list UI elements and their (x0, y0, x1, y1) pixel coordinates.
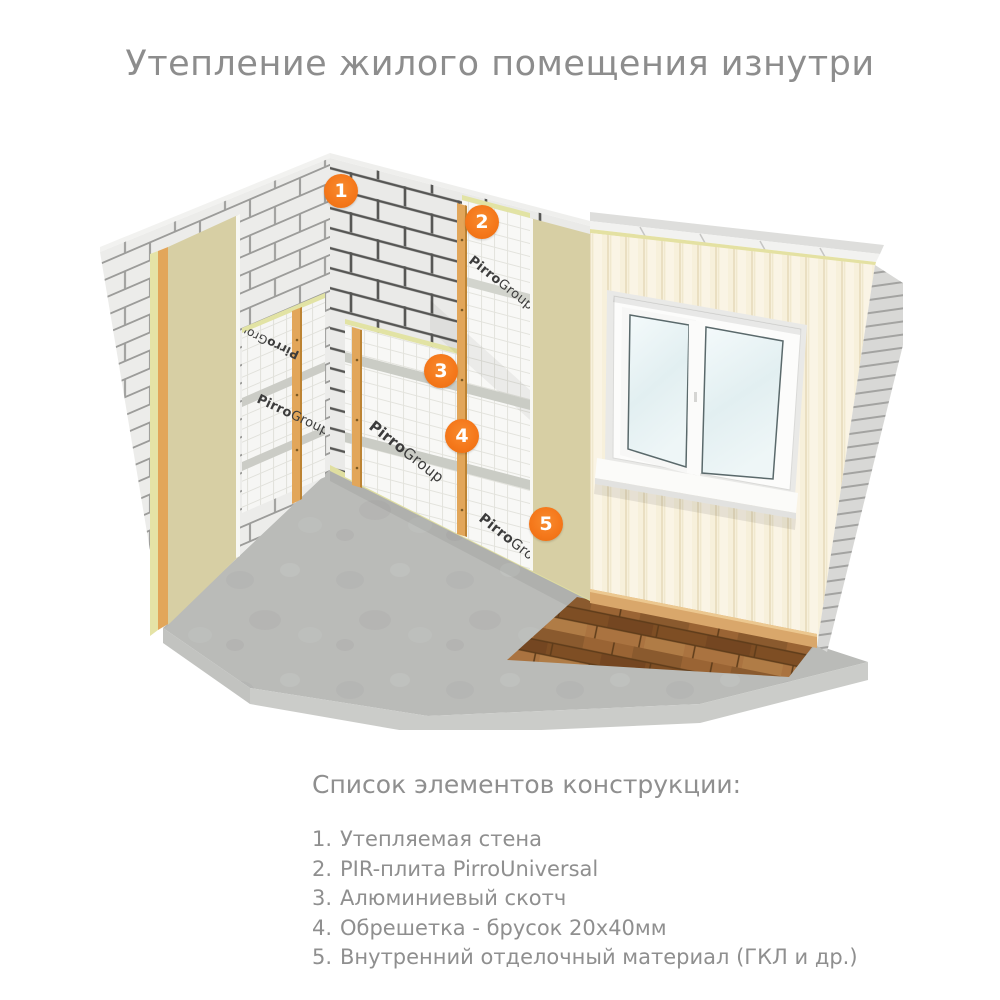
item-text: Алюминиевый скотч (340, 884, 566, 914)
legend-item: 2.PIR-плита PirroUniversal (312, 855, 872, 885)
legend: Список элементов конструкции: 1.Утепляем… (312, 770, 872, 973)
page: Утепление жилого помещения изнутри (0, 0, 1000, 1000)
marker-4: 4 (445, 419, 479, 453)
item-text: Утепляемая стена (340, 825, 542, 855)
window (594, 290, 807, 530)
item-number: 3. (312, 884, 340, 914)
item-number: 4. (312, 914, 340, 944)
window-glass-left (628, 315, 689, 467)
finish-panel-back-wall (530, 218, 590, 600)
item-number: 5. (312, 943, 340, 973)
legend-item: 1.Утепляемая стена (312, 825, 872, 855)
window-handle (694, 392, 697, 402)
legend-heading: Список элементов конструкции: (312, 770, 872, 799)
item-text: Внутренний отделочный материал (ГКЛ и др… (340, 943, 858, 973)
marker-2: 2 (465, 205, 499, 239)
marker-3: 3 (424, 354, 458, 388)
item-number: 2. (312, 855, 340, 885)
marker-5: 5 (529, 507, 563, 541)
legend-item: 5.Внутренний отделочный материал (ГКЛ и … (312, 943, 872, 973)
room-illustration: PirroGroup PirroGroup PirroGroup PirroGr… (80, 130, 920, 730)
page-title: Утепление жилого помещения изнутри (0, 44, 1000, 84)
item-number: 1. (312, 825, 340, 855)
item-text: Обрешетка - брусок 20х40мм (340, 914, 667, 944)
window-glass-right (702, 327, 783, 479)
item-text: PIR-плита PirroUniversal (340, 855, 598, 885)
legend-item: 4.Обрешетка - брусок 20х40мм (312, 914, 872, 944)
insulation-diagram: PirroGroup PirroGroup PirroGroup PirroGr… (80, 130, 920, 730)
batten-left-wall (292, 307, 302, 504)
legend-list: 1.Утепляемая стена 2.PIR-плита PirroUniv… (312, 825, 872, 973)
marker-1: 1 (324, 174, 358, 208)
legend-item: 3.Алюминиевый скотч (312, 884, 872, 914)
